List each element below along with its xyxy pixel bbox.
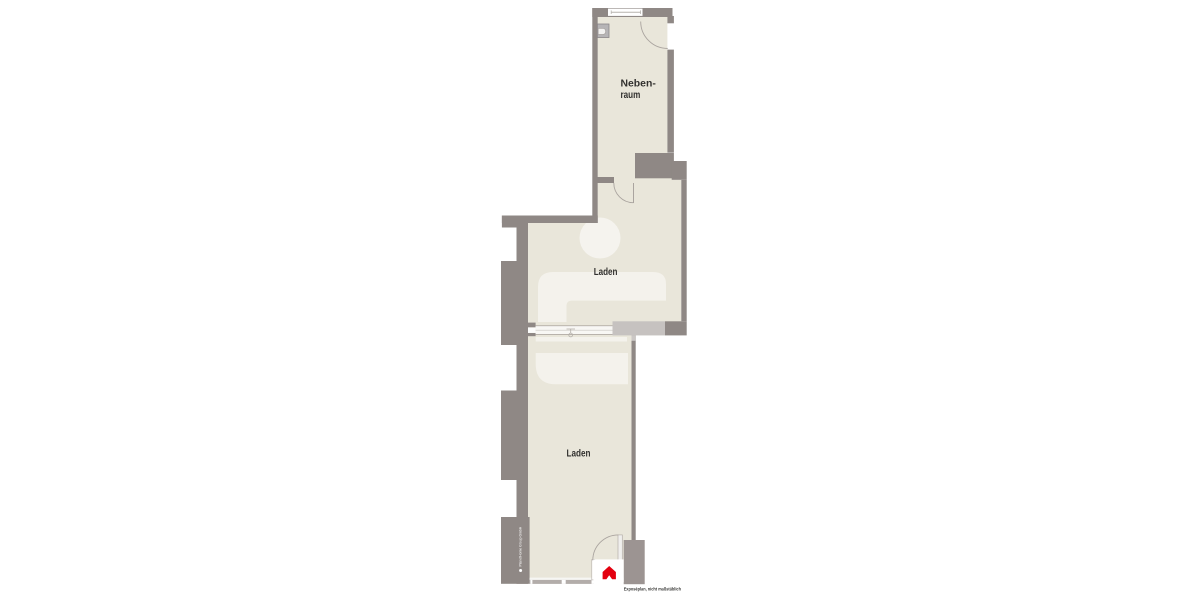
svg-text:Laden: Laden: [594, 267, 618, 278]
svg-text:Neben-: Neben-: [621, 79, 656, 90]
svg-text:PlanetHome Group GmbH: PlanetHome Group GmbH: [519, 526, 523, 566]
svg-text:raum: raum: [621, 90, 641, 101]
svg-text:Exposéplan, nicht maßstäblich: Exposéplan, nicht maßstäblich: [624, 587, 681, 593]
svg-text:Laden: Laden: [567, 449, 591, 460]
